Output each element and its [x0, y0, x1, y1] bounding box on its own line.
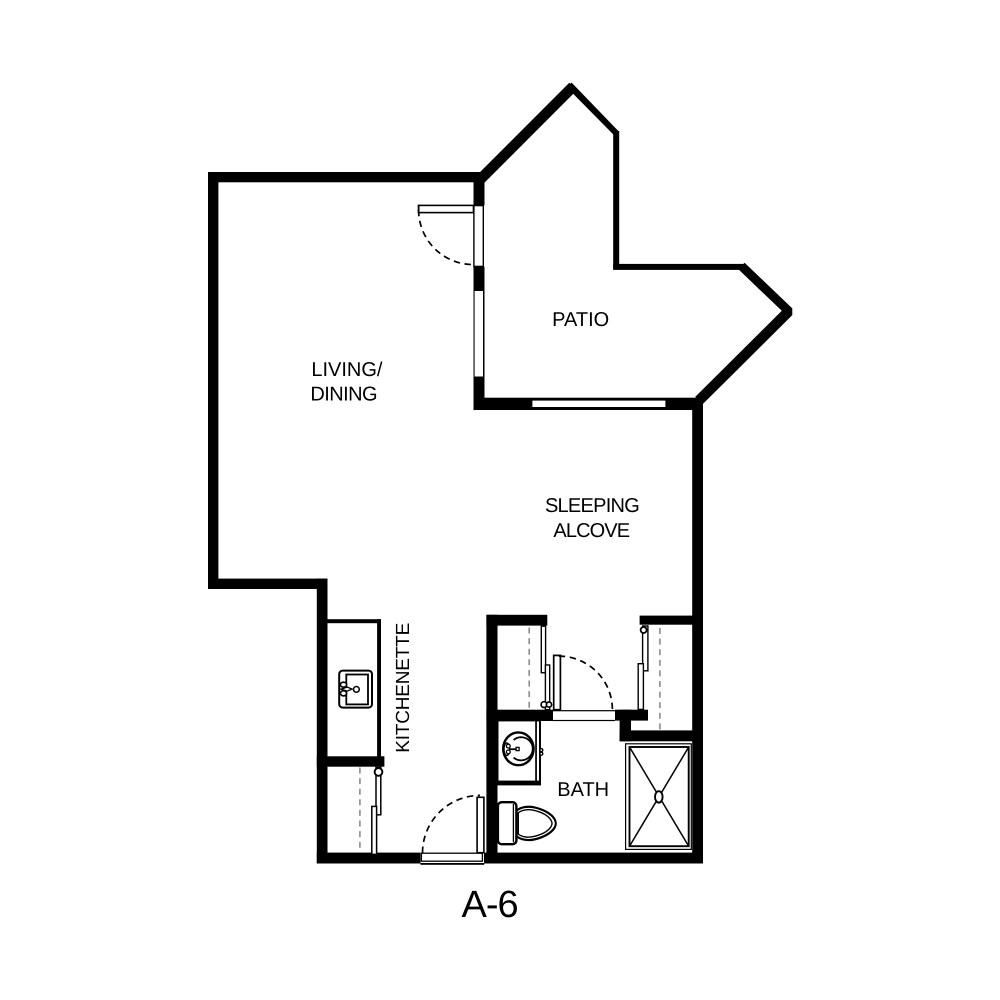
svg-text:PATIO: PATIO: [552, 309, 609, 331]
svg-text:A-6: A-6: [462, 884, 518, 926]
svg-text:BATH: BATH: [557, 779, 609, 801]
svg-text:DINING: DINING: [310, 384, 377, 406]
svg-text:ALCOVE: ALCOVE: [553, 520, 629, 542]
svg-text:LIVING/: LIVING/: [311, 359, 383, 381]
svg-text:SLEEPING: SLEEPING: [545, 495, 639, 517]
svg-text:KITCHENETTE: KITCHENETTE: [393, 623, 414, 753]
